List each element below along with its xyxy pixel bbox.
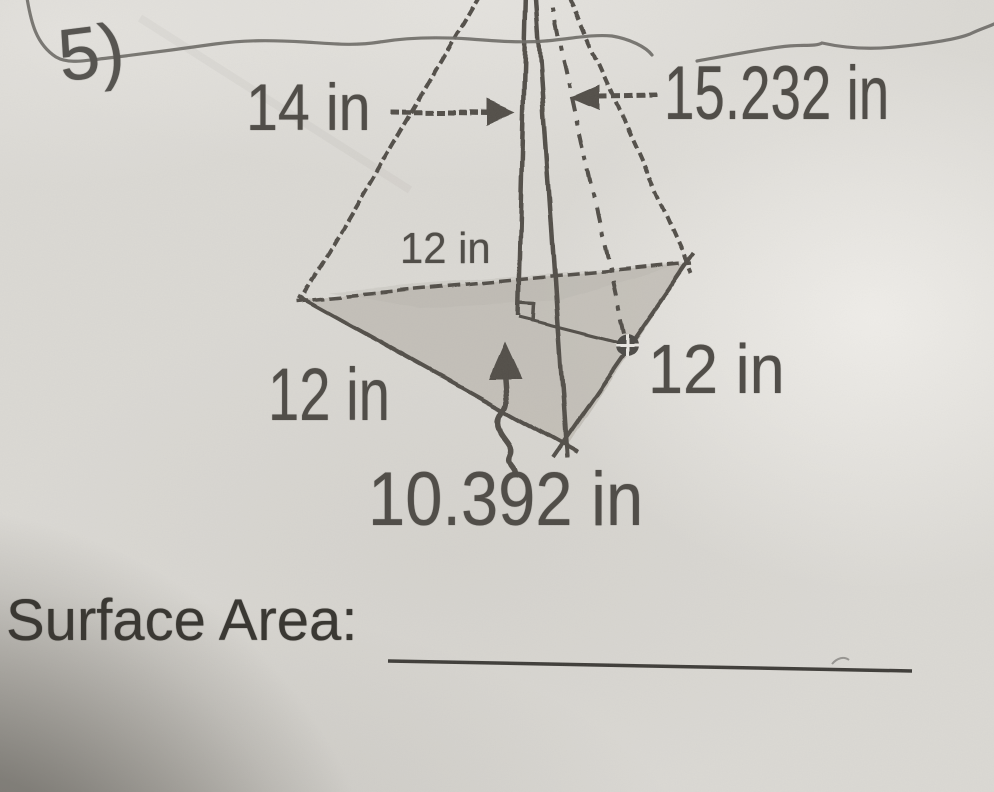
label-base-edge-right: 12 in [648, 334, 785, 404]
label-base-edge-top: 12 in [400, 227, 491, 271]
label-pyramid-height: 14 in [246, 74, 371, 140]
label-base-edge-left: 12 in [268, 358, 390, 432]
label-base-triangle-height: 10.392 in [368, 462, 643, 538]
surface-area-prompt: Surface Area: [6, 592, 357, 650]
label-slant-height: 15.232 in [664, 56, 889, 132]
worksheet-photo: 5) 14 in 15.232 in 12 in 12 in 12 in 10.… [0, 0, 994, 792]
problem-number: 5) [54, 12, 128, 93]
